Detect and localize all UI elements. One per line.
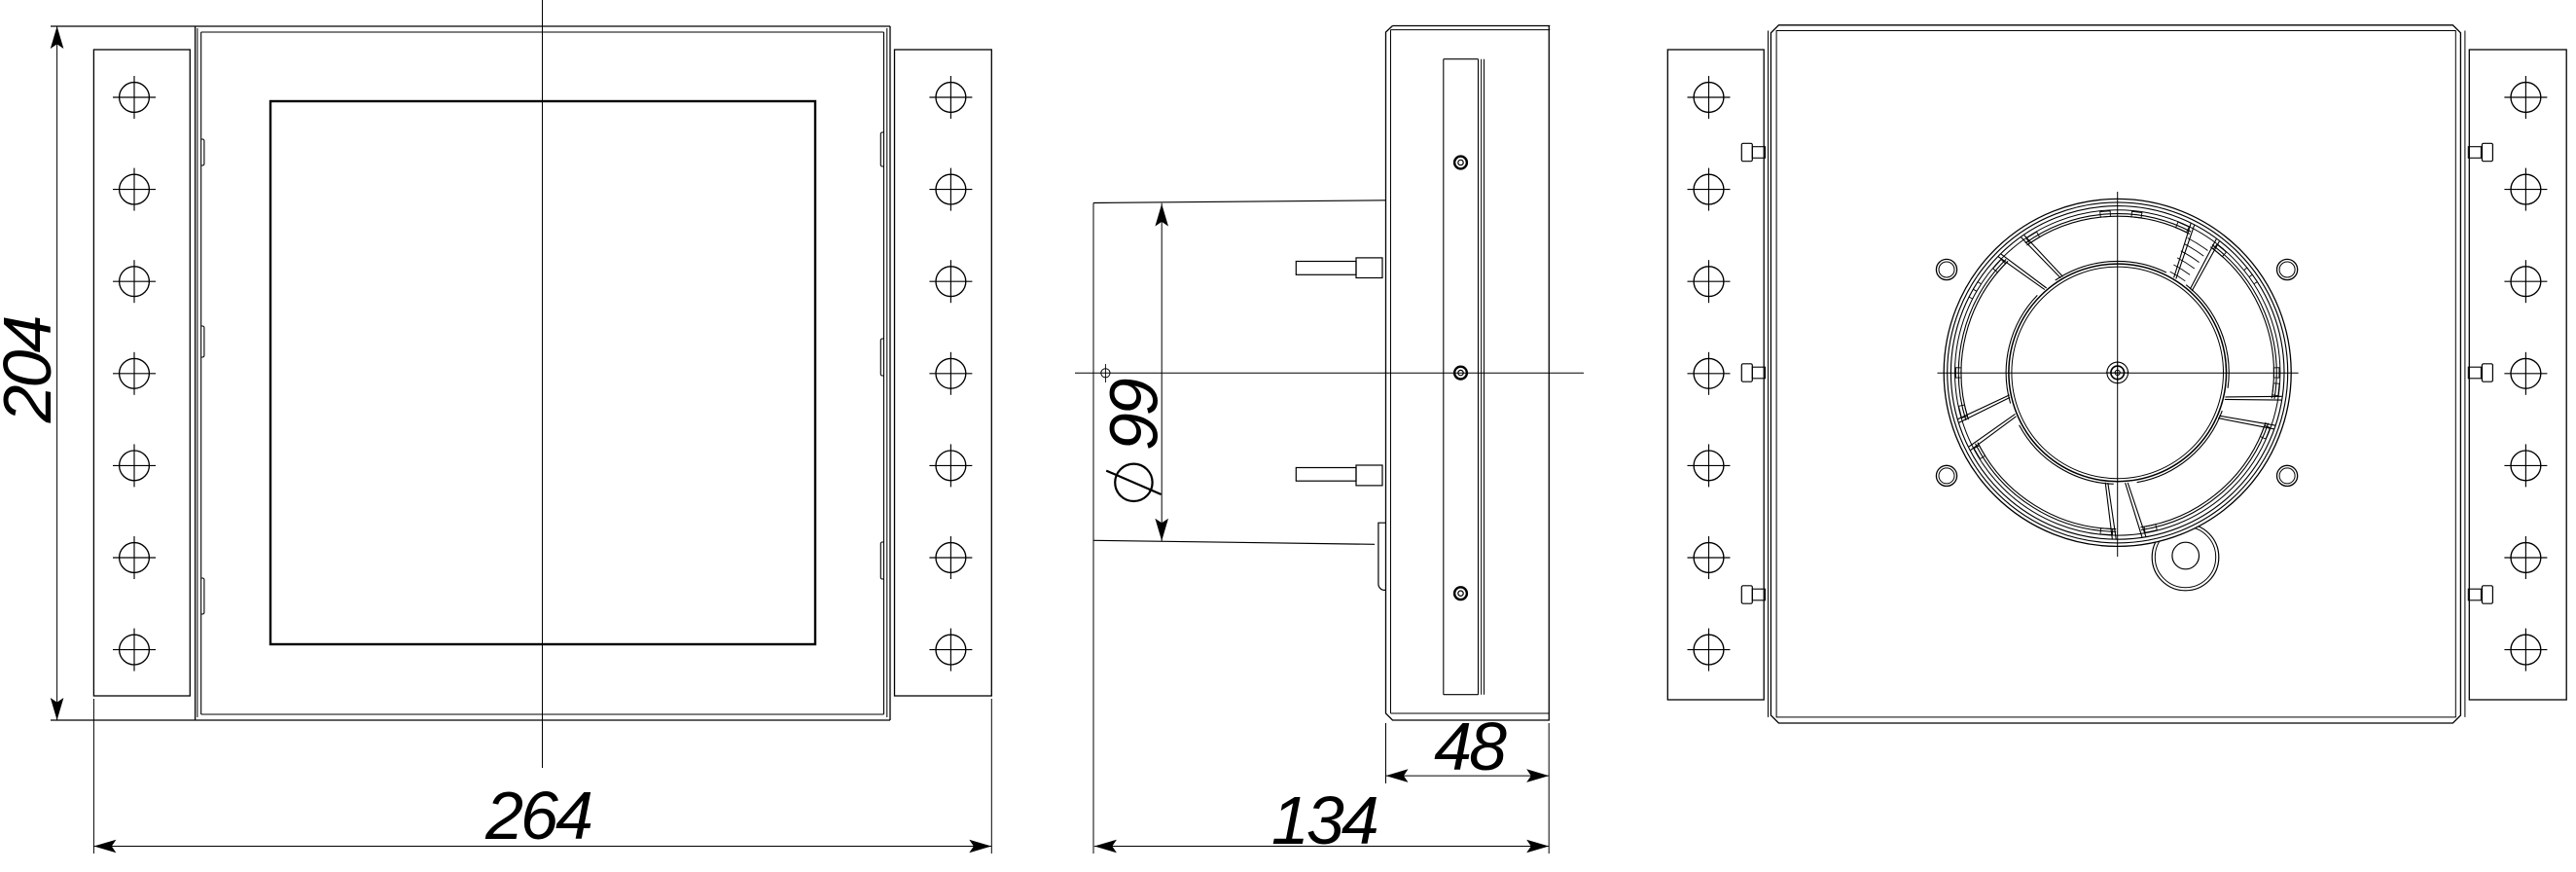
svg-text:48: 48 (1434, 708, 1507, 784)
svg-text:204: 204 (0, 317, 65, 424)
svg-text:99: 99 (1095, 379, 1171, 451)
svg-text:134: 134 (1271, 782, 1377, 858)
svg-text:264: 264 (484, 778, 591, 854)
